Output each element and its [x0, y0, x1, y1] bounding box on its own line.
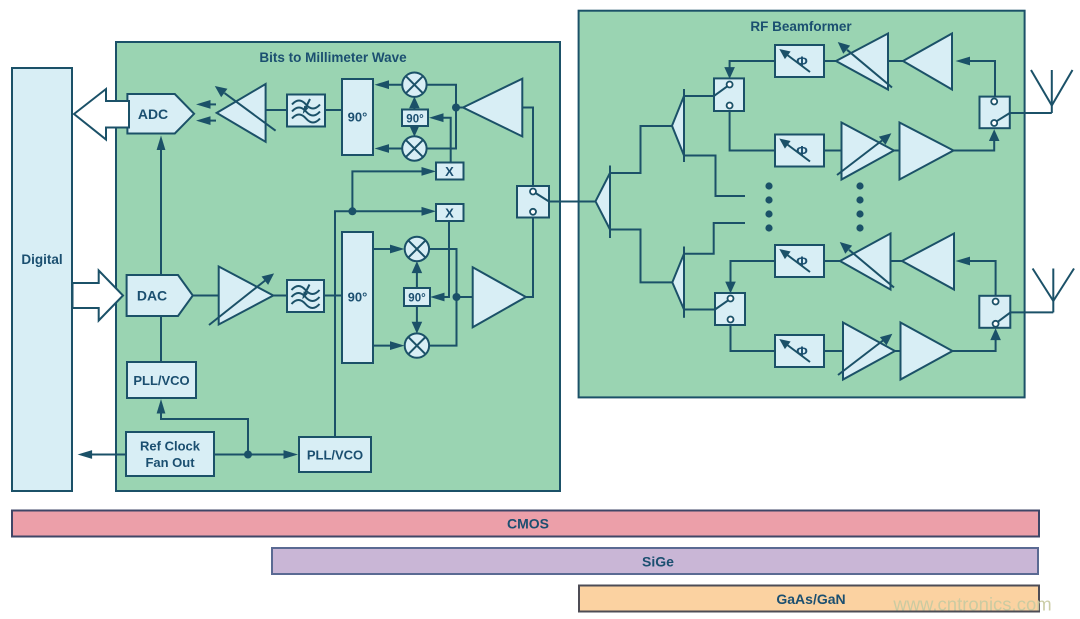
- svg-text:www.cntronics.com: www.cntronics.com: [892, 594, 1051, 615]
- svg-text:90°: 90°: [406, 113, 424, 125]
- svg-text:GaAs/GaN: GaAs/GaN: [776, 591, 845, 607]
- svg-text:X: X: [445, 205, 454, 220]
- svg-text:RF Beamformer: RF Beamformer: [750, 19, 852, 34]
- svg-text:CMOS: CMOS: [507, 516, 549, 532]
- svg-text:Bits to Millimeter Wave: Bits to Millimeter Wave: [259, 50, 407, 65]
- svg-text:PLL/VCO: PLL/VCO: [307, 448, 363, 463]
- svg-text:Digital: Digital: [21, 252, 62, 267]
- svg-text:90°: 90°: [348, 110, 368, 125]
- svg-text:PLL/VCO: PLL/VCO: [133, 373, 189, 388]
- svg-text:DAC: DAC: [137, 288, 167, 304]
- svg-text:Ref Clock: Ref Clock: [140, 439, 201, 454]
- svg-text:90°: 90°: [408, 293, 426, 305]
- svg-text:SiGe: SiGe: [642, 554, 674, 570]
- svg-text:X: X: [445, 164, 454, 179]
- svg-text:Fan Out: Fan Out: [145, 455, 195, 470]
- svg-text:ADC: ADC: [138, 106, 168, 122]
- svg-text:90°: 90°: [348, 290, 368, 305]
